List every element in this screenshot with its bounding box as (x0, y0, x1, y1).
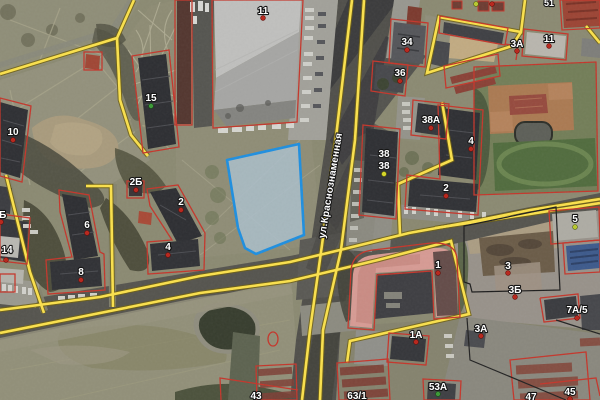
svg-text:6Б: 6Б (0, 210, 6, 221)
svg-text:53А: 53А (429, 382, 447, 393)
svg-text:63/1: 63/1 (347, 391, 367, 400)
svg-text:4: 4 (468, 136, 474, 147)
svg-text:14: 14 (1, 245, 13, 256)
svg-text:6: 6 (84, 220, 90, 231)
svg-text:38: 38 (378, 161, 390, 172)
svg-text:34: 34 (401, 37, 413, 48)
svg-text:51: 51 (544, 0, 554, 8)
svg-text:3Б: 3Б (509, 285, 522, 296)
svg-text:1А: 1А (410, 330, 423, 341)
svg-text:43: 43 (250, 391, 262, 400)
svg-text:11: 11 (544, 34, 555, 45)
svg-text:47: 47 (525, 392, 537, 400)
svg-text:1: 1 (435, 260, 441, 271)
svg-text:15: 15 (145, 93, 157, 104)
svg-text:4: 4 (165, 242, 171, 253)
svg-text:38А: 38А (422, 115, 440, 126)
svg-text:7А/5: 7А/5 (566, 305, 588, 316)
svg-text:36: 36 (394, 68, 406, 79)
svg-text:3: 3 (505, 261, 511, 272)
svg-text:3А: 3А (511, 39, 524, 50)
svg-text:11: 11 (258, 6, 269, 17)
svg-text:2: 2 (443, 183, 449, 194)
svg-text:3А: 3А (475, 324, 488, 335)
svg-text:2: 2 (178, 197, 184, 208)
svg-text:2Б: 2Б (130, 177, 143, 188)
svg-text:38: 38 (378, 149, 390, 160)
svg-text:10: 10 (7, 127, 19, 138)
svg-text:45: 45 (564, 387, 576, 398)
svg-text:5: 5 (572, 214, 578, 225)
svg-text:8: 8 (78, 267, 84, 278)
